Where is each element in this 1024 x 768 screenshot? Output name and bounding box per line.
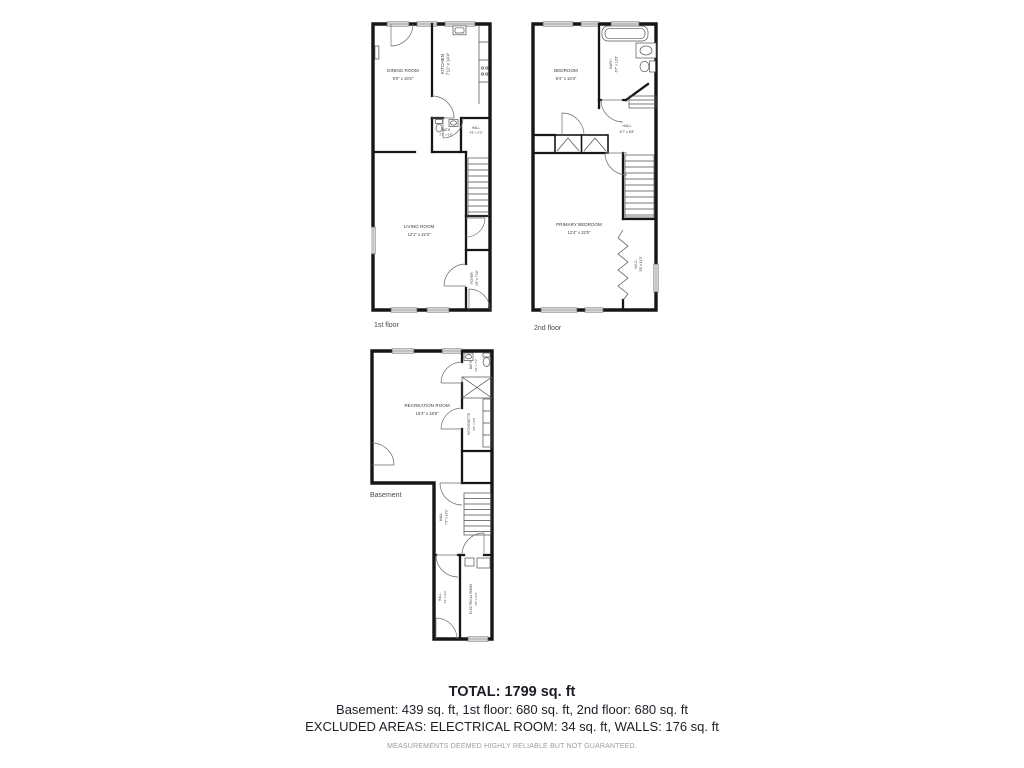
- door-arc: [436, 555, 458, 577]
- toilet: [483, 353, 490, 357]
- first-floor-label: 1st floor: [374, 322, 399, 329]
- doors: [562, 100, 627, 175]
- foyer-dims: 4'8" x 7'10": [475, 270, 479, 286]
- dining-room-dims: 9'0" x 19'2": [393, 76, 414, 81]
- bath-dims: 2'1" x 6'6": [439, 133, 452, 137]
- basement-label: Basement: [370, 492, 402, 499]
- bath-name: BATH: [469, 360, 473, 369]
- door-arc: [391, 24, 413, 46]
- foyer-name: FOYER: [470, 272, 474, 284]
- primary-bedroom-name: PRIMARY BEDROOM: [556, 222, 602, 227]
- hall-dims: 4'8" x 6'0": [469, 131, 482, 135]
- bedroom-name: BEDROOM: [554, 68, 578, 73]
- electrical-room-dims: 3'8" x 9'3": [474, 592, 478, 605]
- wic-accordion-doors: [618, 230, 628, 300]
- recreation-room-dims: 16'3" x 18'8": [416, 411, 439, 416]
- hall-upper-dims: 7'3" x 13'1": [445, 509, 449, 525]
- interior-walls: [373, 24, 490, 310]
- door-arc: [469, 289, 490, 310]
- first-floor-plan: DINING ROOM 9'0" x 19'2" KITCHEN 7'11" x…: [371, 12, 493, 322]
- excluded-areas: EXCLUDED AREAS: ELECTRICAL ROOM: 34 sq. …: [0, 718, 1024, 735]
- second-floor-plan: BEDROOM 9'4" x 16'3" BATH 6'7" x 12'6" H…: [531, 12, 659, 322]
- kitchen-counter: [453, 26, 490, 104]
- door-arc: [432, 96, 454, 118]
- door-arc: [436, 618, 457, 639]
- electrical-room-name: ELECTRICAL ROOM: [469, 583, 473, 614]
- door-arc: [562, 113, 584, 135]
- door-arc: [440, 483, 462, 505]
- door-arc: [441, 408, 462, 429]
- door-arc: [462, 533, 484, 555]
- floor-areas: Basement: 439 sq. ft, 1st floor: 680 sq.…: [0, 701, 1024, 718]
- hall-upper-name: HALL: [439, 513, 443, 522]
- primary-bedroom-dims: 12'4" x 22'5": [568, 230, 591, 235]
- wic-dims: 3'8" x 11'3": [639, 256, 643, 271]
- hall-lower-name: HALL: [438, 593, 442, 601]
- bedroom-closets: [555, 135, 608, 153]
- hall-lower-dims: 3'4" x 9'3": [443, 590, 447, 603]
- kitchen-name: KITCHEN: [440, 54, 445, 74]
- door-arc: [466, 218, 485, 237]
- kitchen-dims: 7'11" x 14'4": [446, 52, 451, 75]
- total-area: TOTAL: 1799 sq. ft: [0, 683, 1024, 701]
- linen-closet: [629, 96, 656, 108]
- wic-name: W.I.C.: [634, 259, 638, 268]
- door-arc: [601, 100, 623, 122]
- bath-name: BATH: [609, 59, 613, 69]
- bath-dims: 6'7" x 12'6": [615, 55, 619, 73]
- toilet: [650, 61, 656, 72]
- floorplan-page: DINING ROOM 9'0" x 19'2" KITCHEN 7'11" x…: [0, 0, 1024, 768]
- dining-room-name: DINING ROOM: [387, 68, 419, 73]
- area-summary: TOTAL: 1799 sq. ft Basement: 439 sq. ft,…: [0, 683, 1024, 750]
- disclaimer: MEASUREMENTS DEEMED HIGHLY RELIABLE BUT …: [0, 743, 1024, 750]
- hall-dims: 6'7" x 6'8": [620, 130, 636, 134]
- radiator: [375, 46, 379, 59]
- kitchenette-name: KITCHENETTE: [467, 413, 471, 435]
- bath-dims: 3'5" x 7'2": [474, 358, 478, 371]
- bath-name: BATH: [442, 128, 451, 132]
- staircase: [625, 155, 654, 217]
- hall-name: HALL: [623, 124, 632, 128]
- staircase: [464, 493, 491, 535]
- windows: [371, 22, 475, 312]
- recreation-room-name: RECREATION ROOM: [404, 403, 450, 408]
- living-room-name: LIVING ROOM: [404, 224, 435, 229]
- kitchenette-dims: 6'8" x 5'8": [472, 417, 476, 430]
- door-arc: [441, 362, 462, 383]
- door-arc: [372, 443, 394, 465]
- bedroom-dims: 9'4" x 16'3": [556, 76, 577, 81]
- door-arc: [444, 264, 466, 286]
- crawl-space: [462, 377, 492, 398]
- hall-name: HALL: [472, 126, 480, 130]
- staircase: [468, 158, 489, 216]
- living-room-dims: 12'1" x 22'3": [408, 232, 431, 237]
- second-floor-label: 2nd floor: [534, 325, 561, 332]
- electrical-equipment: [465, 558, 490, 568]
